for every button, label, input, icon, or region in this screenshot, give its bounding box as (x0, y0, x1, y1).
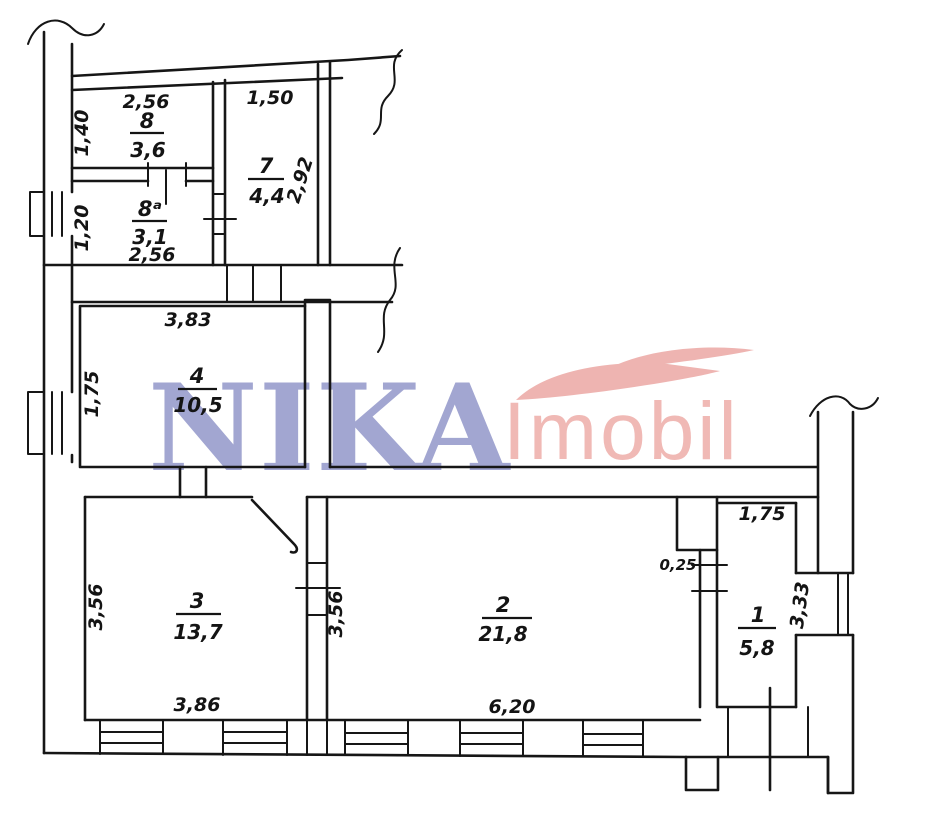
room8a-number: 8ᵃ (138, 197, 162, 221)
floor-plan-sheet: NIKA Imobil (0, 0, 936, 825)
room8-number: 8 (140, 109, 155, 133)
room7-area: 4,4 (248, 184, 284, 208)
room1-number: 1 (751, 603, 766, 627)
niche-block (677, 497, 717, 550)
room4-number: 4 (189, 364, 205, 388)
room3-number: 3 (190, 589, 205, 613)
room8a-dim-left: 1,20 (71, 205, 93, 252)
porch-step-left (686, 757, 718, 790)
room7-dim-top: 1,50 (247, 87, 294, 109)
room2-number: 2 (496, 593, 511, 617)
room1-dim-top: 1,75 (739, 503, 786, 525)
bottom-outer-wall (44, 753, 686, 757)
window-bottom-2 (223, 720, 287, 755)
door-2-1-marks (692, 565, 727, 591)
room7-number: 7 (259, 154, 274, 178)
room7-label: 1,50 7 4,4 2,92 (247, 87, 318, 208)
room2-area: 21,8 (478, 622, 527, 646)
window-bottom-1 (100, 720, 163, 754)
window-bottom-4 (460, 720, 523, 756)
room3-label: 3 13,7 3,56 3,86 (85, 584, 223, 716)
room2-dim-left: 3,56 (325, 591, 347, 638)
room4-dim-top: 3,83 (165, 309, 212, 331)
window-bottom-3 (345, 720, 408, 755)
room2-label: 2 21,8 3,56 6,20 0,25 (325, 556, 697, 718)
room3-dim-bottom: 3,86 (174, 694, 221, 716)
wall-break-squiggle-right (810, 396, 878, 416)
middle-band-walls (72, 248, 400, 352)
room7-dim-right: 2,92 (283, 154, 318, 205)
room8-label: 2,56 1,40 8 3,6 (71, 91, 169, 162)
room3-area: 13,7 (173, 620, 222, 644)
room1-dim-right: 3,33 (786, 580, 814, 629)
room3-dim-left: 3,56 (85, 584, 107, 631)
partition-through-band (307, 720, 327, 755)
watermark: NIKA Imobil (148, 347, 754, 499)
watermark-suffix-text: Imobil (503, 386, 740, 477)
room8a-label: 8ᵃ 3,1 1,20 2,56 (71, 197, 175, 266)
room1-label: 1,75 1 5,8 3,33 (738, 503, 814, 660)
bottom-windows (100, 720, 643, 756)
wall-break-squiggle-top-left (28, 21, 104, 44)
room4-dim-left: 1,75 (81, 371, 103, 418)
room8a-dim-bottom: 2,56 (129, 244, 176, 266)
door-room3-leaf (252, 500, 297, 552)
room2-dim-bottom: 6,20 (489, 696, 536, 718)
wall-break-squiggle-middle (378, 248, 400, 352)
top-outer-wall (72, 56, 400, 76)
porch (686, 688, 828, 793)
chimney-marks (227, 265, 281, 302)
room3-walls (85, 497, 700, 720)
wall-break-squiggle-top-right (374, 50, 402, 134)
room8-dim-left: 1,40 (71, 110, 93, 157)
window-left-top (30, 192, 62, 236)
room2-dim-niche: 0,25 (659, 556, 696, 574)
room1-area: 5,8 (739, 636, 775, 660)
room4-area: 10,5 (173, 393, 222, 417)
room8-area: 3,6 (130, 138, 166, 162)
room2-room1-partition (677, 497, 727, 707)
floor-plan-drawing: NIKA Imobil (0, 0, 936, 825)
window-bottom-5 (583, 720, 643, 756)
